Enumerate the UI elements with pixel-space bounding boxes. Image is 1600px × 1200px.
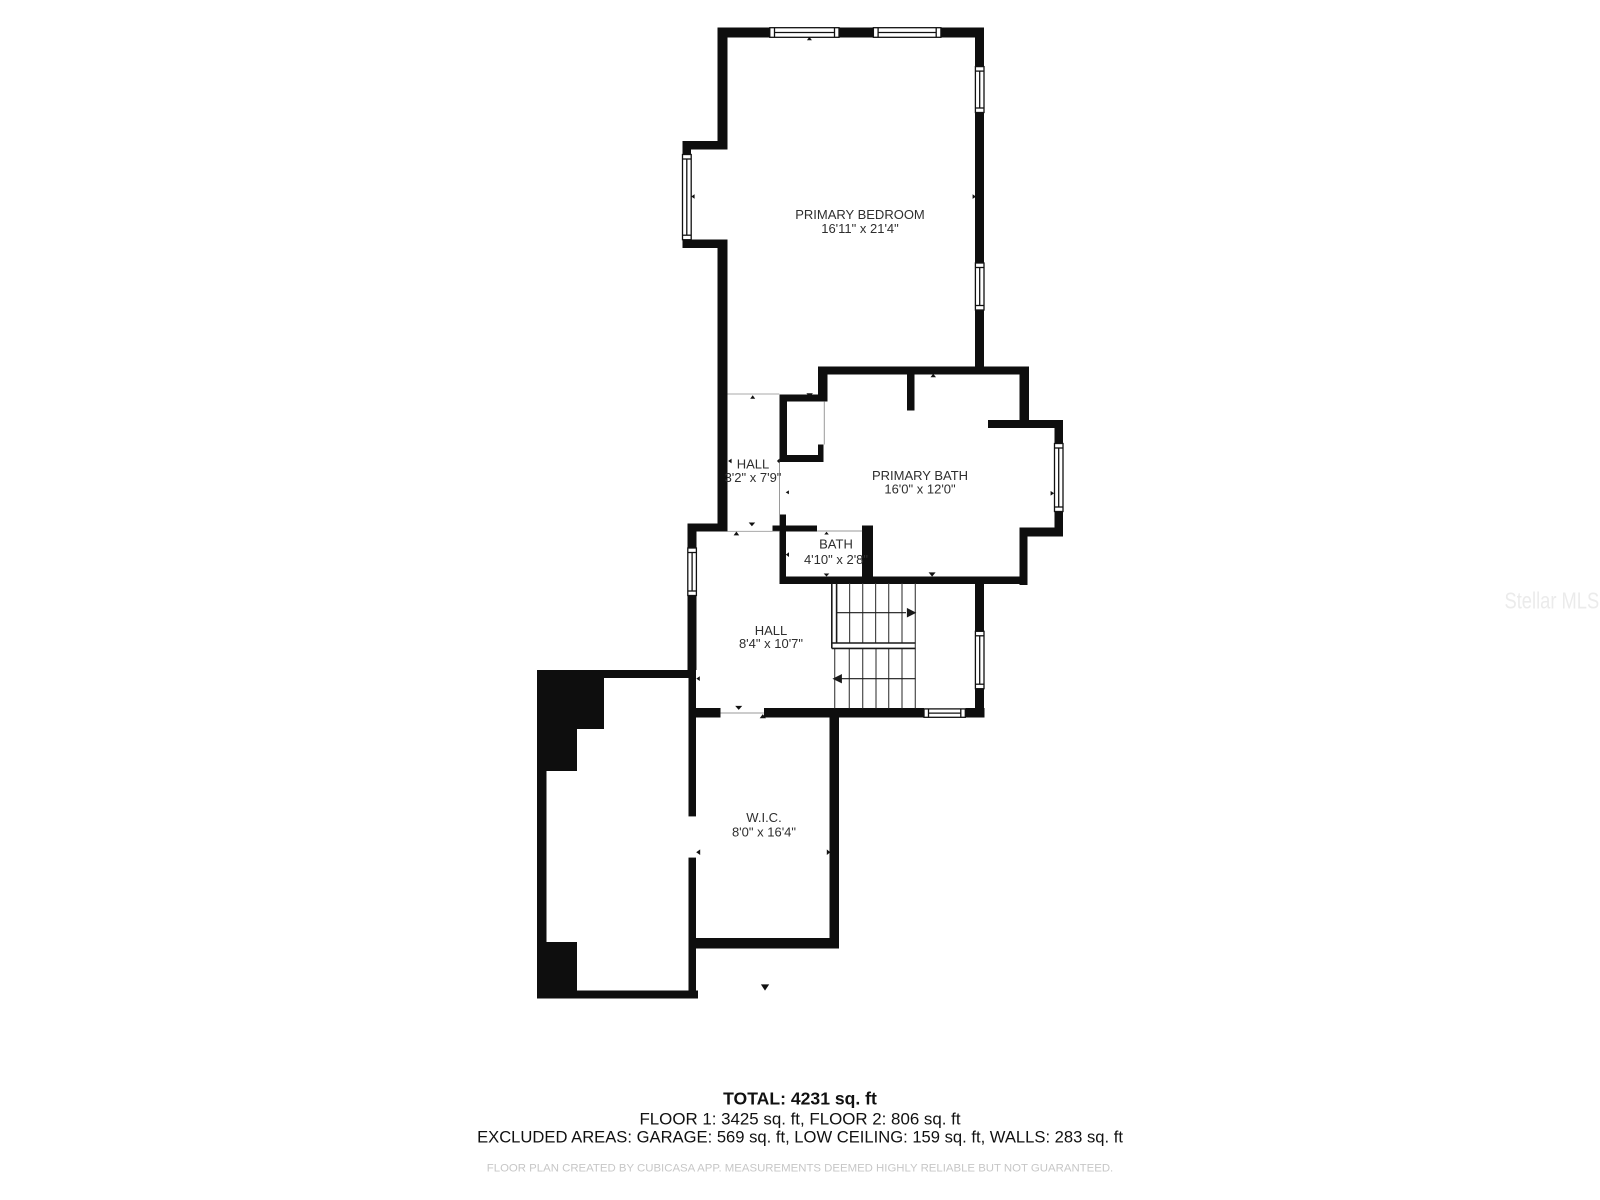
svg-text:BATH: BATH <box>819 537 853 552</box>
svg-text:EXCLUDED AREAS: GARAGE: 569 sq: EXCLUDED AREAS: GARAGE: 569 sq. ft, LOW … <box>477 1127 1123 1146</box>
svg-text:PRIMARY BEDROOM: PRIMARY BEDROOM <box>795 207 925 222</box>
svg-text:8'0" x 16'4": 8'0" x 16'4" <box>732 825 796 840</box>
svg-text:16'11" x 21'4": 16'11" x 21'4" <box>821 221 899 236</box>
svg-text:FLOOR 1: 3425 sq. ft, FLOOR 2:: FLOOR 1: 3425 sq. ft, FLOOR 2: 806 sq. f… <box>639 1109 960 1128</box>
svg-text:FLOOR PLAN CREATED BY CUBICASA: FLOOR PLAN CREATED BY CUBICASA APP. MEAS… <box>487 1162 1113 1174</box>
svg-text:8'4" x 10'7": 8'4" x 10'7" <box>739 636 803 651</box>
svg-text:TOTAL: 4231 sq. ft: TOTAL: 4231 sq. ft <box>723 1089 877 1109</box>
svg-text:16'0" x 12'0": 16'0" x 12'0" <box>884 482 956 497</box>
svg-text:W.I.C.: W.I.C. <box>746 810 781 825</box>
svg-text:Stellar MLS: Stellar MLS <box>1505 588 1600 614</box>
svg-text:3'2" x 7'9": 3'2" x 7'9" <box>725 470 782 485</box>
svg-text:4'10" x 2'8": 4'10" x 2'8" <box>804 552 868 567</box>
